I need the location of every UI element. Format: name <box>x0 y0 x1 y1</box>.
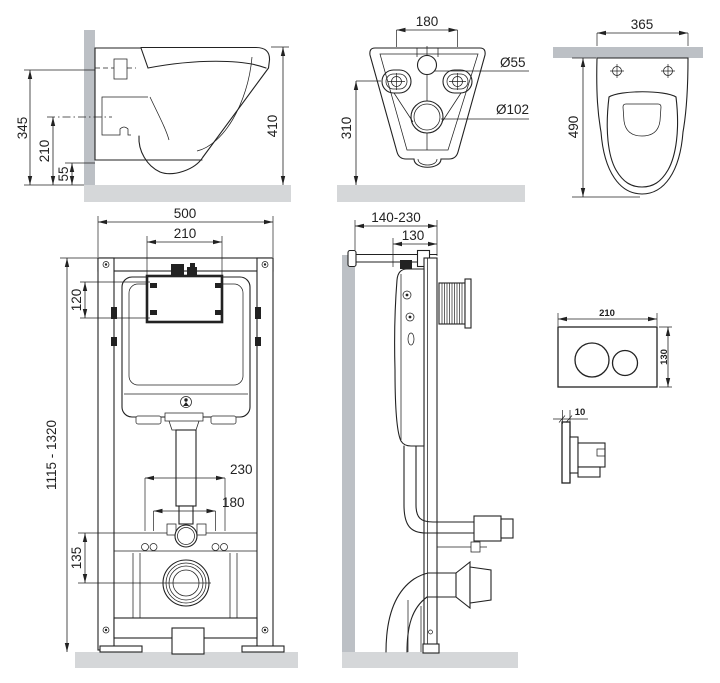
dim-label-width: 365 <box>631 17 654 32</box>
toilet-top-view: 365 490 <box>553 17 703 197</box>
dim-label-bolts-wide: 230 <box>230 462 253 477</box>
flush-pipe-lower <box>179 506 193 524</box>
rim-underside <box>148 61 266 68</box>
dim-label-bowl-height: 410 <box>265 115 280 138</box>
extension-line <box>597 33 688 46</box>
lid-rear-edge <box>141 48 148 68</box>
dim-label-plate-width: 210 <box>599 308 615 319</box>
flush-pipe-collar <box>165 413 203 430</box>
cistern-profile <box>395 269 424 446</box>
inlet-connector <box>114 59 127 79</box>
plate-mechanism-step2 <box>578 467 600 477</box>
drain-template-box <box>172 628 204 654</box>
service-window <box>147 276 222 322</box>
flush-plate <box>558 327 657 387</box>
outlet-hole <box>411 101 443 133</box>
left-foot-plate <box>100 646 142 652</box>
bowl-inner-curve <box>197 57 252 151</box>
dim-label-height-range: 1115 - 1320 <box>44 420 59 490</box>
wall-anchor-cap <box>348 251 356 267</box>
dim-label-outlet-axis-height: 310 <box>339 117 354 140</box>
flush-plate-front-view: 210 130 <box>558 308 672 387</box>
elbow-side-tab <box>197 524 206 535</box>
dim-label-plate-thickness: 10 <box>575 407 586 418</box>
frame-side-view: 140-230 130 <box>342 210 518 668</box>
dim-label-depth: 490 <box>566 116 581 139</box>
trap-curve <box>150 97 169 140</box>
dim-label-drain-offset: 135 <box>69 547 84 570</box>
toilet-side-view: 345 210 55 410 <box>15 30 291 202</box>
flush-plate-side-view: 10 <box>553 407 605 483</box>
plate-mechanism-body <box>578 443 605 467</box>
inlet-hole <box>418 56 437 75</box>
installation-dimensions-drawing: 345 210 55 410 180 Ø55 <box>0 0 720 683</box>
elbow-side-tab <box>167 524 176 535</box>
flush-pipe <box>176 430 196 506</box>
flush-pipe-cap <box>501 519 513 538</box>
dim-label-total-height: 345 <box>15 117 30 140</box>
dim-label-rim-height: 210 <box>37 140 52 163</box>
mounting-bracket <box>102 97 148 135</box>
post-foot <box>423 644 439 653</box>
toilet-rear-view: 180 Ø55 Ø102 310 <box>337 14 529 202</box>
dim-label-window-width: 210 <box>174 226 197 241</box>
seat-top-edge <box>141 48 270 69</box>
dim-label-outlet-diameter: Ø102 <box>496 102 529 117</box>
bowl-top-outline <box>597 58 688 194</box>
frame-front-view: 500 210 120 1115 - 1320 230 180 135 <box>44 206 298 668</box>
plate-mechanism-step1 <box>570 437 578 473</box>
right-foot-plate <box>242 646 284 652</box>
frame-post <box>424 258 437 650</box>
fill-valve-cap <box>400 260 412 269</box>
technical-drawing-sheet: 345 210 55 410 180 Ø55 <box>0 0 720 683</box>
cistern-top-fittings <box>171 263 197 277</box>
frame-top-bar <box>98 258 273 271</box>
wall-surface <box>84 30 95 202</box>
dim-label-depth-range: 140-230 <box>371 210 421 225</box>
drain-outlet-cone <box>456 562 470 608</box>
dim-label-bolt-spacing: 180 <box>416 14 439 29</box>
floor-surface <box>337 185 525 202</box>
bowl-bottom-curve <box>139 136 203 174</box>
fixing-stud-nut <box>471 542 480 552</box>
drain-outlet-stub <box>470 567 491 603</box>
extension-line <box>397 30 458 47</box>
connector-flange <box>465 279 471 328</box>
dim-label-window-height: 120 <box>69 289 84 312</box>
flush-plate-profile <box>562 422 570 483</box>
dim-label-bolts-narrow: 180 <box>222 495 245 510</box>
flush-pipe-profile <box>404 446 416 505</box>
floor-surface <box>84 185 291 202</box>
wall-surface <box>342 255 355 652</box>
floor-surface <box>342 652 518 668</box>
dim-label-frame-width: 500 <box>174 206 197 221</box>
flush-elbow <box>175 525 197 547</box>
dim-label-outlet-height: 55 <box>56 166 71 181</box>
flush-pipe-connector <box>474 516 501 541</box>
wall-surface <box>553 47 703 58</box>
cistern-support-tab <box>136 416 161 424</box>
dim-label-inlet-diameter: Ø55 <box>500 55 526 70</box>
dim-label-frame-depth: 130 <box>402 228 425 243</box>
dim-label-plate-height: 130 <box>659 349 670 365</box>
cistern-support-tab <box>211 416 236 424</box>
